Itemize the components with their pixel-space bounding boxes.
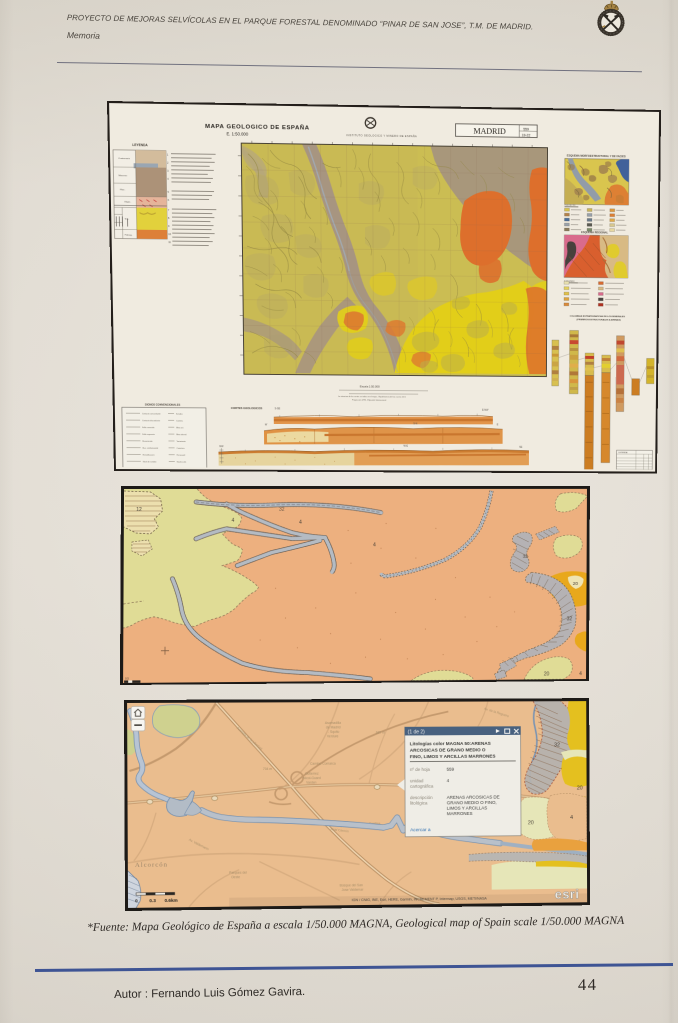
- svg-text:MADRID: MADRID: [474, 127, 506, 136]
- svg-text:LEYENDA: LEYENDA: [618, 451, 628, 454]
- svg-text:Terc.: Terc.: [124, 218, 129, 221]
- svg-text:4: 4: [373, 542, 376, 548]
- svg-text:CORTES GEOLOGICOS: CORTES GEOLOGICOS: [231, 406, 262, 410]
- svg-text:SIGNOS CONVENCIONALES: SIGNOS CONVENCIONALES: [145, 403, 181, 407]
- svg-text:Falla supuesta: Falla supuesta: [142, 433, 155, 436]
- svg-text:cartográfica: cartográfica: [410, 784, 434, 789]
- svg-text:Estratificacion: Estratificacion: [143, 454, 155, 457]
- svg-text:0.6km: 0.6km: [165, 898, 178, 903]
- svg-text:687 m: 687 m: [376, 731, 385, 735]
- svg-text:COLUMNAS ESTRATIGRAFICAS DE LO: COLUMNAS ESTRATIGRAFICAS DE LOS MINERALE…: [570, 315, 626, 318]
- svg-text:Nivel de sondeo: Nivel de sondeo: [143, 462, 157, 464]
- svg-text:Proyeccion UTM - Elipsoide I: Proyeccion UTM - Elipsoide Internacional: [352, 399, 387, 402]
- svg-text:Buz. subhorizontal: Buz. subhorizontal: [143, 447, 159, 450]
- svg-text:Acercar a: Acercar a: [410, 827, 431, 833]
- svg-text:NW: NW: [219, 445, 224, 448]
- svg-text:20: 20: [577, 786, 583, 792]
- svg-text:Parques del: Parques del: [229, 871, 247, 875]
- svg-text:Oligoc.: Oligoc.: [124, 201, 131, 203]
- svg-text:GRANO MEDIO O FINO,: GRANO MEDIO O FINO,: [447, 800, 497, 805]
- svg-text:Nucleo urb.: Nucleo urb.: [177, 462, 187, 464]
- svg-text:LEYENDA: LEYENDA: [132, 143, 148, 147]
- svg-text:32: 32: [279, 507, 285, 513]
- svg-text:- Squito: - Squito: [328, 730, 340, 734]
- svg-text:FINO, LIMOS Y ARCILLAS MARRONE: FINO, LIMOS Y ARCILLAS MARRONES: [410, 754, 496, 760]
- svg-text:4: 4: [579, 671, 582, 677]
- svg-text:Ferrocarril: Ferrocarril: [177, 455, 186, 457]
- svg-text:MARRONES: MARRONES: [447, 811, 473, 816]
- svg-text:0: 0: [135, 898, 138, 903]
- svg-text:0.5: 0.5: [125, 676, 129, 680]
- svg-text:nº de hoja: nº de hoja: [410, 767, 430, 772]
- svg-text:E. 1:50.000: E. 1:50.000: [226, 131, 248, 136]
- svg-text:Camino Comarca: Camino Comarca: [310, 762, 336, 766]
- svg-text:Alcorcón: Alcorcón: [135, 862, 168, 869]
- svg-text:Litologías color MAGNA 50:AREN: Litologías color MAGNA 50:ARENAS: [410, 741, 491, 747]
- svg-text:unidad: unidad: [410, 778, 424, 783]
- svg-text:Escala 1:50.000: Escala 1:50.000: [360, 385, 380, 389]
- svg-text:S-SE: S-SE: [275, 407, 281, 410]
- svg-text:(PRIMEROS ESTRUCTURALES A AR: (PRIMEROS ESTRUCTURALES A ARENAS): [577, 318, 621, 321]
- svg-text:Contacto discordante: Contacto discordante: [142, 419, 160, 422]
- svg-text:0.3: 0.3: [149, 898, 156, 903]
- svg-text:Yacimiento: Yacimiento: [176, 440, 185, 443]
- svg-text:Gutierrez: Gutierrez: [305, 772, 319, 776]
- svg-text:20: 20: [573, 581, 579, 587]
- svg-text:Oeste: Oeste: [231, 875, 240, 879]
- svg-text:ESQUEMA REGIONAL: ESQUEMA REGIONAL: [581, 230, 608, 234]
- svg-text:704 m: 704 m: [263, 767, 272, 771]
- svg-text:12: 12: [136, 507, 142, 513]
- svg-text:32: 32: [554, 743, 560, 749]
- svg-text:32: 32: [523, 554, 528, 559]
- svg-text:4: 4: [232, 518, 235, 524]
- svg-text:descripción: descripción: [410, 795, 433, 800]
- svg-text:4: 4: [570, 815, 573, 821]
- svg-text:Cuaternario: Cuaternario: [118, 157, 130, 160]
- svg-text:SE: SE: [519, 446, 522, 449]
- svg-text:Asomadilla: Asomadilla: [325, 721, 341, 725]
- svg-text:Nicol-Guard: Nicol-Guard: [303, 776, 321, 780]
- svg-text:ARCOSICAS DE GRANO MEDIO O: ARCOSICAS DE GRANO MEDIO O: [410, 747, 486, 753]
- svg-text:Cantera: Cantera: [176, 420, 184, 423]
- svg-text:Carretera: Carretera: [177, 447, 186, 450]
- svg-text:Mioceno: Mioceno: [119, 175, 128, 177]
- svg-text:S-N: S-N: [413, 422, 417, 425]
- svg-text:Jose Valdemar: Jose Valdemar: [342, 888, 365, 892]
- svg-text:Verdure: Verdure: [327, 734, 339, 738]
- svg-text:de Madrid: de Madrid: [326, 725, 341, 729]
- svg-text:Plioc.: Plioc.: [120, 189, 126, 191]
- svg-text:Sondeo: Sondeo: [176, 414, 183, 416]
- svg-text:Paleog.: Paleog.: [125, 235, 133, 237]
- svg-text:559: 559: [447, 767, 455, 772]
- svg-text:Buzamiento: Buzamiento: [142, 440, 152, 443]
- svg-text:litológica: litológica: [410, 801, 428, 806]
- svg-text:32: 32: [567, 616, 573, 622]
- svg-text:Contacto concordante: Contacto concordante: [142, 413, 161, 416]
- svg-text:(1 de 2): (1 de 2): [408, 729, 425, 735]
- svg-text:LIMOS Y ARCILLAS: LIMOS Y ARCILLAS: [447, 805, 487, 810]
- svg-text:E-NW: E-NW: [482, 409, 489, 412]
- svg-text:Varden: Varden: [306, 781, 317, 785]
- svg-text:Mina aband.: Mina aband.: [176, 434, 187, 436]
- svg-text:20: 20: [528, 820, 534, 826]
- svg-text:W-E: W-E: [403, 445, 408, 448]
- svg-text:20: 20: [544, 672, 550, 678]
- svg-text:19-22: 19-22: [522, 133, 531, 137]
- svg-text:esri: esri: [555, 887, 580, 902]
- svg-text:Mina act.: Mina act.: [176, 427, 184, 430]
- svg-text:559: 559: [523, 127, 529, 131]
- svg-text:Falla conocida: Falla conocida: [142, 427, 155, 429]
- svg-text:4: 4: [299, 520, 302, 526]
- svg-text:La situacion de los cortes se: La situacion de los cortes se indica en …: [338, 395, 406, 398]
